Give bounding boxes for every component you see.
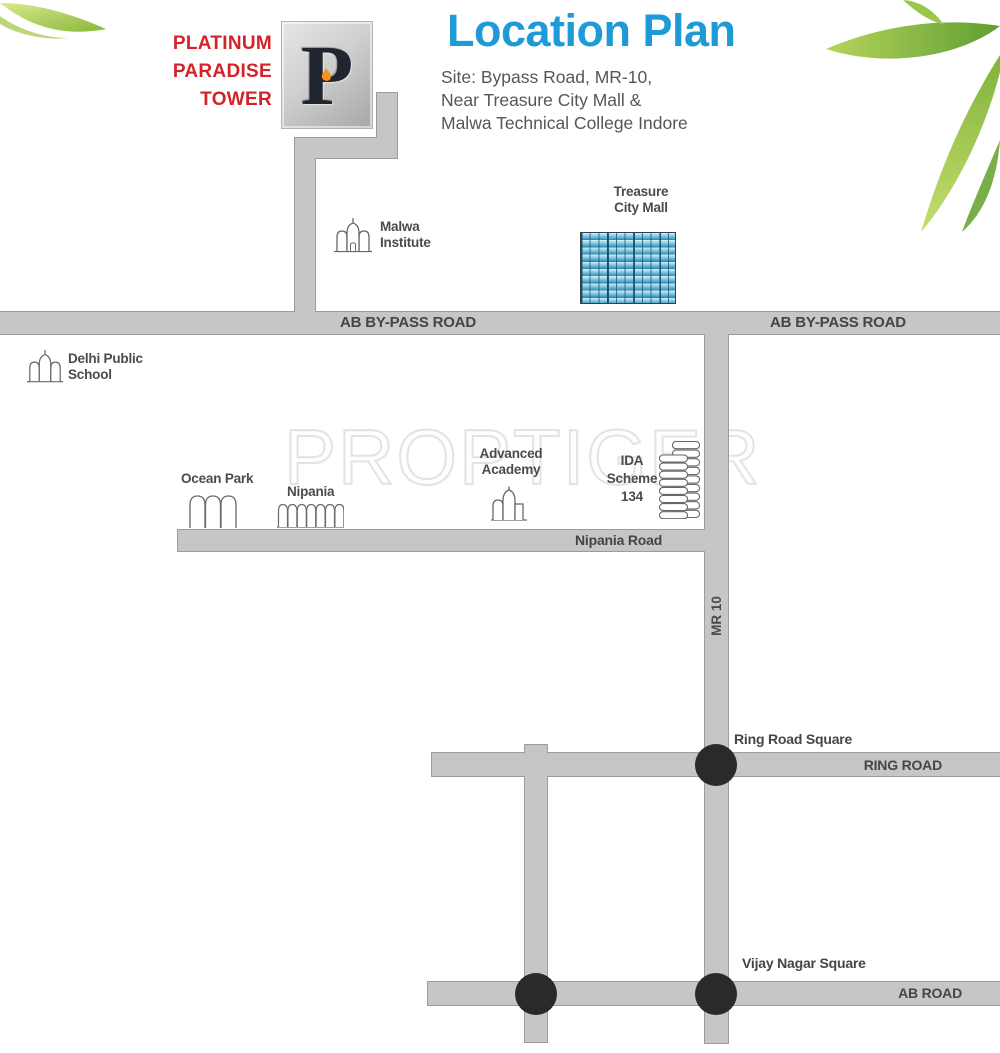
vijay-nagar-square-junction <box>695 973 737 1015</box>
malwa-institute-icon <box>333 216 373 253</box>
location-plan-map: PLATINUM PARADISE TOWER P Location Plan … <box>0 0 1000 1053</box>
delhi-public-school-label: Delhi Public School <box>68 351 143 384</box>
nipania-road-label: Nipania Road <box>575 532 662 548</box>
ab-bypass-road-label-right: AB BY-PASS ROAD <box>770 314 900 331</box>
nipania-icon <box>277 501 344 528</box>
roads-layer <box>0 0 1000 1053</box>
ring-road-square-label: Ring Road Square <box>734 731 852 747</box>
road-borders <box>0 92 1000 1044</box>
mr10-road <box>705 334 728 1043</box>
ida-scheme-label: IDA Scheme 134 <box>606 452 658 507</box>
treasure-city-mall-building <box>580 232 676 304</box>
ocean-park-label: Ocean Park <box>181 471 253 487</box>
ida-scheme-icon <box>659 441 701 519</box>
advanced-academy-label: Advanced Academy <box>477 446 545 479</box>
ocean-park-icon <box>188 492 238 529</box>
treasure-city-mall-label: Treasure City Mall <box>593 184 689 217</box>
west-junction-dot <box>515 973 557 1015</box>
delhi-public-school-icon <box>26 346 64 385</box>
ab-road-label: AB ROAD <box>898 985 962 1001</box>
ring-road-label: RING ROAD <box>864 757 942 773</box>
site-access-road-segment3 <box>295 138 315 313</box>
malwa-institute-label: Malwa Institute <box>380 219 431 252</box>
nipania-label: Nipania <box>287 484 334 500</box>
advanced-academy-icon <box>490 486 528 521</box>
ring-road-square-junction <box>695 744 737 786</box>
mr10-road-label: MR 10 <box>690 590 742 642</box>
ab-bypass-road-label-left: AB BY-PASS ROAD <box>322 314 494 331</box>
vijay-nagar-square-label: Vijay Nagar Square <box>742 955 866 971</box>
